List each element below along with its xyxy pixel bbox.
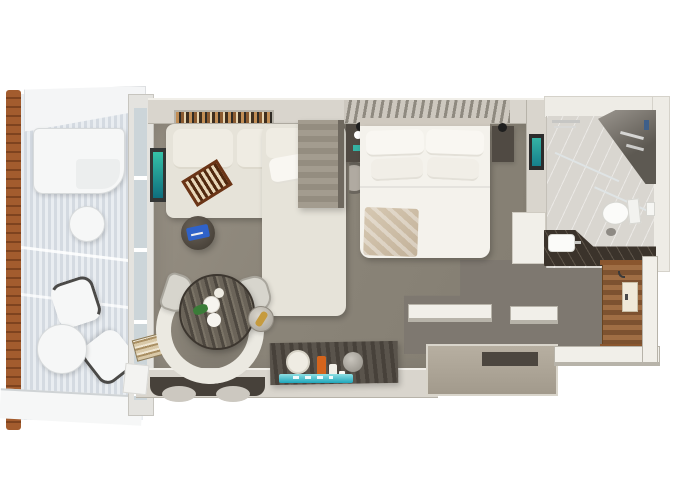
drinks-tray [279,374,353,383]
ice-bucket [343,352,363,372]
plate [207,313,221,327]
toilet-bowl [601,200,630,226]
toilet-tank [627,198,642,224]
pillow [366,129,425,157]
threshold [600,260,646,265]
toilet-paper-holder [646,202,655,216]
window-wall-endcap [122,363,149,395]
entry-right-wall [642,256,658,366]
shower-control [644,120,649,130]
small-dish [214,288,224,298]
balcony-rail-bottom [0,388,143,425]
faucet [575,241,581,244]
bath-door-panel [512,212,546,264]
wall-art [529,134,544,170]
decor-arc [216,386,250,402]
sink [548,234,575,252]
balcony-sun-lounger [33,128,125,194]
tv-screen [153,152,163,198]
dining-table [179,274,255,350]
pillow [370,157,423,182]
throw-folds [363,207,419,257]
pillow [426,157,479,182]
towel-rail [552,120,580,123]
pillow [426,129,485,157]
divider-cabinet [298,120,344,208]
tray-items [293,376,333,379]
wardrobe [426,344,558,396]
balcony-side-table [69,206,105,242]
art-canvas [532,138,541,166]
round-tray [286,350,310,374]
balcony-cocktail-table [37,324,87,374]
duvet-fold [360,186,490,188]
toilet [601,196,644,228]
balcony-wood-railing [6,90,21,430]
bookshelf [174,110,274,125]
toilet-brush [606,228,616,236]
wardrobe-slot [482,352,538,366]
throw-blanket [363,207,419,257]
lounger-cushion [76,159,120,189]
sofa-back-cushion [173,129,233,169]
suite-floor-plan [0,0,680,486]
decor-arc [162,386,196,402]
door-handle [625,294,628,300]
reading-lamp [498,123,507,132]
towel-rail [554,126,576,128]
vestibule-wall [510,306,558,324]
wall-tv [150,148,166,202]
vestibule-wall [408,304,492,322]
